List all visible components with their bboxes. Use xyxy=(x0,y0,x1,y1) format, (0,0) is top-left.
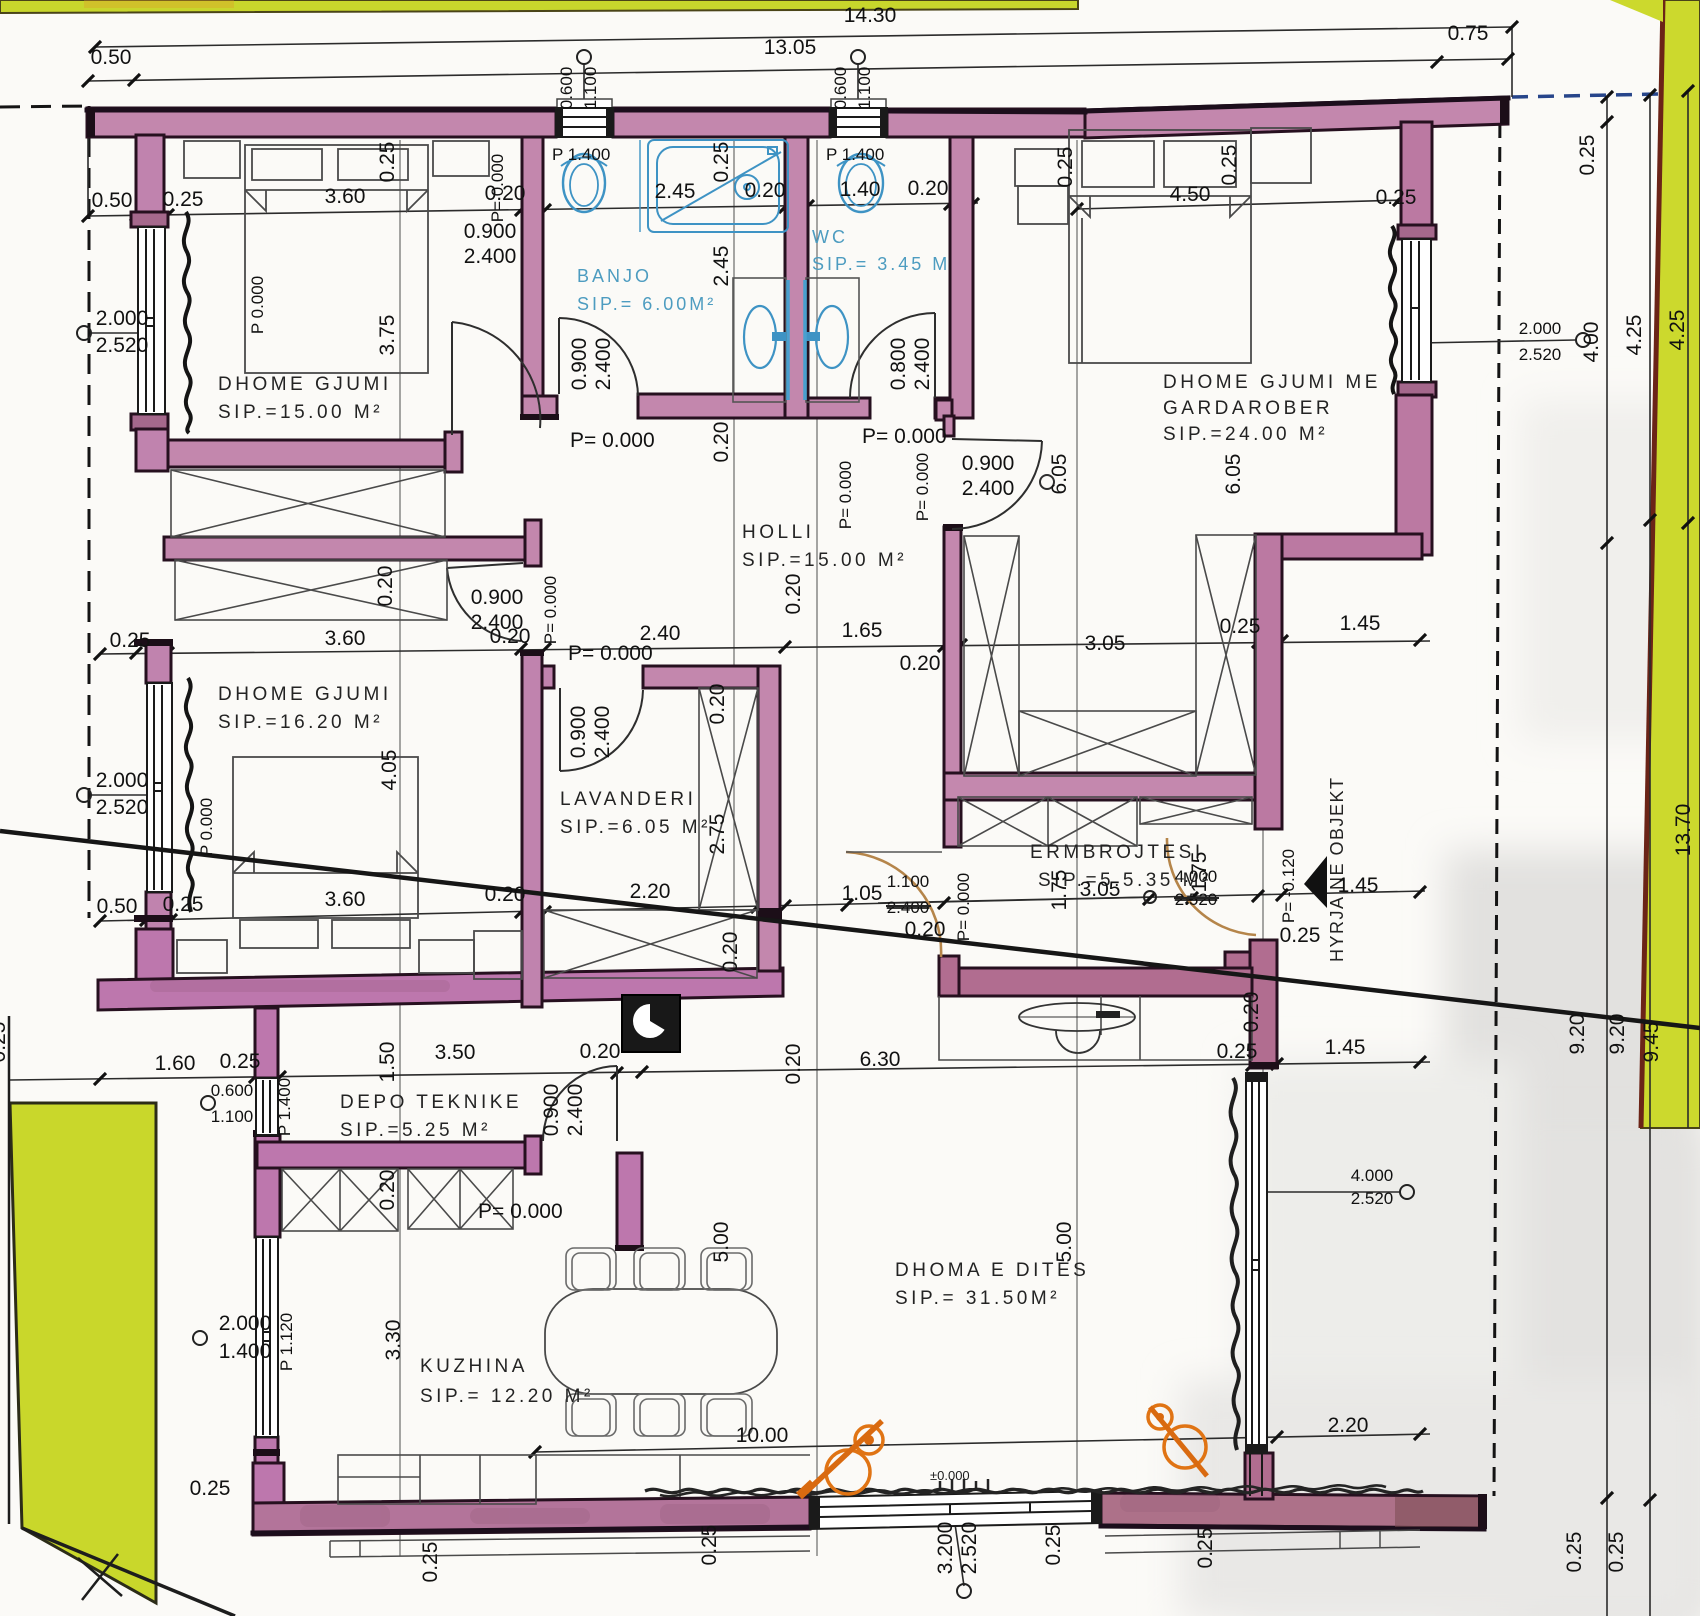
svg-text:P= 0.000: P= 0.000 xyxy=(862,425,947,448)
svg-text:LAVANDERI: LAVANDERI xyxy=(560,789,696,810)
svg-text:3.05: 3.05 xyxy=(1085,632,1126,655)
svg-text:0.900: 0.900 xyxy=(471,586,524,609)
svg-text:2.20: 2.20 xyxy=(1328,1414,1369,1437)
svg-text:P= 0.000: P= 0.000 xyxy=(478,1200,563,1223)
svg-text:0.20: 0.20 xyxy=(485,883,526,906)
svg-text:0.25: 0.25 xyxy=(110,629,151,652)
svg-text:0.600: 0.600 xyxy=(211,1081,254,1100)
svg-text:SIP.= 12.20 M²: SIP.= 12.20 M² xyxy=(420,1386,594,1407)
svg-text:P= 0.000: P= 0.000 xyxy=(954,873,973,942)
svg-text:4.25: 4.25 xyxy=(1623,315,1646,356)
svg-text:KUZHINA: KUZHINA xyxy=(420,1356,528,1377)
svg-text:0.900: 0.900 xyxy=(464,220,517,243)
svg-text:0.50: 0.50 xyxy=(97,895,138,918)
svg-text:1.50: 1.50 xyxy=(376,1042,399,1083)
svg-text:0.25: 0.25 xyxy=(710,142,733,183)
svg-text:0.900: 0.900 xyxy=(962,452,1015,475)
svg-text:2.75: 2.75 xyxy=(706,814,729,855)
svg-text:4.000: 4.000 xyxy=(1351,1166,1394,1185)
svg-text:2.520: 2.520 xyxy=(1519,345,1562,364)
svg-text:13.05: 13.05 xyxy=(764,36,817,59)
svg-text:0.900: 0.900 xyxy=(567,706,590,759)
svg-text:±0.000: ±0.000 xyxy=(930,1468,970,1483)
svg-text:2.400: 2.400 xyxy=(911,338,934,391)
svg-text:DEPO TEKNIKE: DEPO TEKNIKE xyxy=(340,1092,522,1113)
svg-text:GARDAROBER: GARDAROBER xyxy=(1163,398,1333,419)
svg-text:1.05: 1.05 xyxy=(842,882,883,905)
svg-text:P= 0.000: P= 0.000 xyxy=(541,576,560,645)
svg-text:P= 0.000: P= 0.000 xyxy=(570,429,655,452)
svg-text:2.400: 2.400 xyxy=(471,611,524,634)
svg-text:0.75: 0.75 xyxy=(1448,22,1489,45)
svg-text:SIP.= 6.00M²: SIP.= 6.00M² xyxy=(577,294,716,314)
svg-text:0.20: 0.20 xyxy=(908,177,949,200)
svg-text:2.520: 2.520 xyxy=(96,796,149,819)
svg-text:1.75: 1.75 xyxy=(1048,870,1071,911)
svg-text:SIP.=5.25 M²: SIP.=5.25 M² xyxy=(340,1120,491,1141)
svg-text:2.000: 2.000 xyxy=(96,769,149,792)
svg-text:0.25: 0.25 xyxy=(1376,186,1417,209)
svg-text:0.600: 0.600 xyxy=(557,67,576,110)
svg-text:0.20: 0.20 xyxy=(706,684,729,725)
svg-text:P= -0.120: P= -0.120 xyxy=(1279,849,1298,923)
svg-text:2.20: 2.20 xyxy=(630,880,671,903)
svg-text:SIP.= 3.45 M: SIP.= 3.45 M xyxy=(812,254,950,274)
svg-text:4.50: 4.50 xyxy=(1170,183,1211,206)
svg-text:0.25: 0.25 xyxy=(1218,145,1241,186)
svg-text:0.20: 0.20 xyxy=(376,1170,399,1211)
svg-text:2.400: 2.400 xyxy=(564,1084,587,1137)
svg-text:0.25: 0.25 xyxy=(0,1022,10,1063)
svg-text:0.600: 0.600 xyxy=(831,67,850,110)
svg-text:0.25: 0.25 xyxy=(1220,615,1261,638)
svg-text:2.45: 2.45 xyxy=(710,246,733,287)
svg-text:1.40: 1.40 xyxy=(840,178,881,201)
svg-text:0.25: 0.25 xyxy=(1576,135,1599,176)
svg-text:0.900: 0.900 xyxy=(568,338,591,391)
svg-text:2.400: 2.400 xyxy=(591,706,614,759)
svg-text:DHOME GJUMI: DHOME GJUMI xyxy=(218,684,392,705)
svg-text:1.75: 1.75 xyxy=(1188,852,1211,893)
svg-text:0.20: 0.20 xyxy=(782,574,805,615)
svg-text:3.200: 3.200 xyxy=(934,1522,957,1575)
svg-text:6.05: 6.05 xyxy=(1048,454,1071,495)
svg-text:0.25: 0.25 xyxy=(163,188,204,211)
svg-text:14.30: 14.30 xyxy=(844,4,897,27)
svg-text:P 0.000: P 0.000 xyxy=(197,798,216,856)
svg-text:2.400: 2.400 xyxy=(592,338,615,391)
svg-text:0.25: 0.25 xyxy=(220,1050,261,1073)
svg-text:BANJO: BANJO xyxy=(577,266,652,286)
svg-text:9.45: 9.45 xyxy=(1640,1022,1663,1063)
svg-text:0.25: 0.25 xyxy=(1194,1528,1217,1569)
svg-text:0.25: 0.25 xyxy=(1042,1525,1065,1566)
svg-text:P= 0.000: P= 0.000 xyxy=(836,461,855,530)
svg-text:2.000: 2.000 xyxy=(219,1312,272,1335)
svg-text:0.25: 0.25 xyxy=(1217,1040,1258,1063)
svg-text:P= 0.000: P= 0.000 xyxy=(568,642,653,665)
svg-text:10.00: 10.00 xyxy=(736,1424,789,1447)
svg-text:P 0.000: P 0.000 xyxy=(248,276,267,334)
svg-text:0.20: 0.20 xyxy=(719,932,742,973)
svg-text:2.520: 2.520 xyxy=(958,1522,981,1575)
svg-text:3.60: 3.60 xyxy=(325,185,366,208)
svg-text:P 1.400: P 1.400 xyxy=(552,145,610,164)
svg-text:3.60: 3.60 xyxy=(325,888,366,911)
svg-text:1.45: 1.45 xyxy=(1340,612,1381,635)
svg-text:0.25: 0.25 xyxy=(190,1477,231,1500)
svg-text:0.25: 0.25 xyxy=(376,142,399,183)
svg-text:ERMBROJTESI: ERMBROJTESI xyxy=(1030,842,1204,863)
svg-text:SIP.=15.00 M²: SIP.=15.00 M² xyxy=(742,550,907,571)
svg-text:2.000: 2.000 xyxy=(1519,319,1562,338)
svg-text:6.05: 6.05 xyxy=(1222,454,1245,495)
svg-text:1.65: 1.65 xyxy=(842,619,883,642)
svg-text:0.20: 0.20 xyxy=(374,566,397,607)
svg-text:0.20: 0.20 xyxy=(782,1044,805,1085)
svg-text:0.800: 0.800 xyxy=(887,338,910,391)
svg-text:1.100: 1.100 xyxy=(211,1107,254,1126)
svg-text:1.45: 1.45 xyxy=(1338,874,1379,897)
svg-text:0.20: 0.20 xyxy=(710,422,733,463)
svg-text:0.25: 0.25 xyxy=(1563,1532,1586,1573)
svg-text:1.100: 1.100 xyxy=(887,872,930,891)
svg-text:1.45: 1.45 xyxy=(1325,1036,1366,1059)
svg-text:3.50: 3.50 xyxy=(435,1041,476,1064)
svg-text:2.520: 2.520 xyxy=(96,334,149,357)
svg-text:SIP.= 31.50M²: SIP.= 31.50M² xyxy=(895,1288,1060,1309)
svg-text:3.30: 3.30 xyxy=(382,1320,405,1361)
svg-text:2.400: 2.400 xyxy=(464,245,517,268)
svg-text:HOLLI: HOLLI xyxy=(742,522,814,543)
svg-text:0.25: 0.25 xyxy=(1605,1532,1628,1573)
svg-text:0.20: 0.20 xyxy=(745,179,786,202)
svg-text:4.00: 4.00 xyxy=(1580,322,1603,363)
svg-text:1.400: 1.400 xyxy=(219,1340,272,1363)
svg-text:5.00: 5.00 xyxy=(1053,1222,1076,1263)
svg-text:2.520: 2.520 xyxy=(1351,1189,1394,1208)
svg-text:HYRJA NE OBJEKT: HYRJA NE OBJEKT xyxy=(1327,776,1347,962)
svg-text:SIP.=15.00 M²: SIP.=15.00 M² xyxy=(218,402,383,423)
svg-text:3.60: 3.60 xyxy=(325,627,366,650)
svg-text:0.25: 0.25 xyxy=(1280,924,1321,947)
svg-text:6.30: 6.30 xyxy=(860,1048,901,1071)
svg-text:2.400: 2.400 xyxy=(962,477,1015,500)
svg-text:P= 0.000: P= 0.000 xyxy=(913,453,932,522)
svg-text:2.400: 2.400 xyxy=(887,898,930,917)
svg-text:2.45: 2.45 xyxy=(655,180,696,203)
svg-text:13.70: 13.70 xyxy=(1672,804,1695,857)
svg-text:DHOME GJUMI: DHOME GJUMI xyxy=(218,374,392,395)
svg-text:P= 0.000: P= 0.000 xyxy=(488,154,507,223)
svg-text:DHOME GJUMI ME: DHOME GJUMI ME xyxy=(1163,372,1381,393)
svg-text:SIP.=6.05 M²: SIP.=6.05 M² xyxy=(560,817,711,838)
svg-text:1.100: 1.100 xyxy=(855,67,874,110)
svg-text:0.20: 0.20 xyxy=(1240,992,1263,1033)
svg-text:1.60: 1.60 xyxy=(155,1052,196,1075)
svg-text:0.50: 0.50 xyxy=(92,189,133,212)
svg-text:9.20: 9.20 xyxy=(1566,1014,1589,1055)
svg-text:1.100: 1.100 xyxy=(581,67,600,110)
svg-text:2.000: 2.000 xyxy=(96,307,149,330)
svg-text:0.900: 0.900 xyxy=(540,1084,563,1137)
svg-text:P 1.120: P 1.120 xyxy=(277,1313,296,1371)
svg-text:0.20: 0.20 xyxy=(580,1040,621,1063)
svg-text:3.75: 3.75 xyxy=(376,315,399,356)
svg-text:SIP.=16.20 M²: SIP.=16.20 M² xyxy=(218,712,383,733)
svg-text:5.00: 5.00 xyxy=(710,1222,733,1263)
svg-text:0.25: 0.25 xyxy=(1054,147,1077,188)
svg-text:WC: WC xyxy=(812,227,848,247)
svg-text:9.20: 9.20 xyxy=(1606,1014,1629,1055)
svg-text:3.05: 3.05 xyxy=(1080,878,1121,901)
svg-text:P 1.400: P 1.400 xyxy=(275,1078,294,1136)
svg-text:SIP.=24.00 M²: SIP.=24.00 M² xyxy=(1163,424,1328,445)
svg-text:4.05: 4.05 xyxy=(378,750,401,791)
svg-text:4.25: 4.25 xyxy=(1666,310,1689,351)
svg-text:0.20: 0.20 xyxy=(905,918,946,941)
svg-text:0.50: 0.50 xyxy=(91,46,132,69)
svg-text:0.25: 0.25 xyxy=(698,1525,721,1566)
svg-text:0.25: 0.25 xyxy=(163,893,204,916)
svg-text:P 1.400: P 1.400 xyxy=(826,145,884,164)
svg-text:0.20: 0.20 xyxy=(900,652,941,675)
svg-text:0.25: 0.25 xyxy=(419,1542,442,1583)
